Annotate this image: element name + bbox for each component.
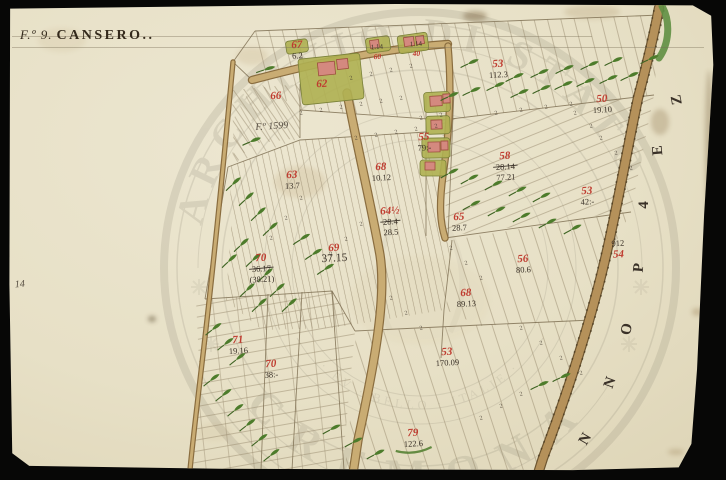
- parcel-number: 60: [373, 52, 381, 61]
- garden-plot: [298, 53, 364, 105]
- field-region: [344, 320, 592, 478]
- area-value: 38:-: [264, 369, 278, 380]
- area-value: 89.13: [457, 298, 477, 309]
- parcel-number: 54: [613, 248, 625, 261]
- building: [425, 162, 435, 170]
- area-value: 112.3: [489, 69, 508, 80]
- border-letter: N: [601, 375, 620, 391]
- area-value: (38.21): [249, 273, 274, 284]
- paper-stain: [463, 11, 487, 21]
- paper-stain: [148, 316, 156, 322]
- area-value: 10.12: [372, 172, 392, 183]
- field-hatching: [188, 15, 660, 478]
- border-letter: N: [576, 430, 595, 448]
- map-drawing: 2222222222222222222222222222222222222222…: [0, 0, 726, 480]
- parcel-number: 62: [316, 78, 328, 91]
- border-letter: P: [631, 262, 648, 273]
- paper-stain: [705, 70, 713, 220]
- field-mark: 2: [394, 129, 398, 136]
- area-value: 79:-: [417, 142, 431, 153]
- border-letter: Z: [668, 93, 685, 106]
- border-letter: E: [650, 145, 667, 156]
- parcel-label: 66: [270, 90, 282, 103]
- field-mark: 2: [579, 370, 583, 377]
- field-region: [188, 291, 355, 470]
- parcel-label: 676.2: [291, 39, 304, 61]
- area-value: 13.7: [285, 180, 300, 191]
- folio-number: F.º 9.: [20, 27, 53, 42]
- area-value: 912: [611, 238, 624, 249]
- paper-stain: [651, 109, 669, 135]
- building: [337, 58, 349, 69]
- area-value: 77.21: [496, 171, 516, 182]
- place-name: CANSERO..: [57, 28, 155, 43]
- parcel-label: 91254: [611, 238, 625, 261]
- ruled-line: [12, 47, 704, 48]
- map-title: F.º 9. CANSERO..: [20, 26, 155, 44]
- area-value: 6.2: [292, 50, 303, 61]
- building: [317, 61, 335, 76]
- area-value: 80.6: [516, 264, 531, 275]
- scanned-map-page: ARCHIVIO DI STATO CREMONA · EV · BELLO ·…: [0, 0, 726, 480]
- parcel-number: 66: [270, 90, 282, 103]
- building: [441, 141, 448, 150]
- map-sheet: ARCHIVIO DI STATO CREMONA · EV · BELLO ·…: [8, 4, 714, 472]
- building: [430, 96, 443, 107]
- paper-stain: [692, 308, 702, 316]
- field-mark: 2: [374, 132, 378, 139]
- parcel-number: 40: [411, 49, 420, 58]
- area-value: 28.7: [452, 222, 467, 233]
- area-value: 122.6: [404, 438, 424, 449]
- area-value: 19.16: [229, 345, 249, 356]
- area-value: 170.09: [435, 357, 459, 368]
- field-mark: 2: [299, 110, 303, 117]
- handwritten-note: 14: [14, 279, 25, 291]
- area-value: 28.5: [383, 227, 398, 238]
- area-value: 42:-: [580, 196, 594, 207]
- border-letter: O: [618, 322, 636, 337]
- border-letter: 4: [636, 201, 652, 209]
- area-value: 37.15: [321, 252, 348, 265]
- parcel-label: 62: [316, 78, 328, 91]
- area-value: 19.10: [593, 104, 613, 115]
- paper-stain: [668, 449, 684, 455]
